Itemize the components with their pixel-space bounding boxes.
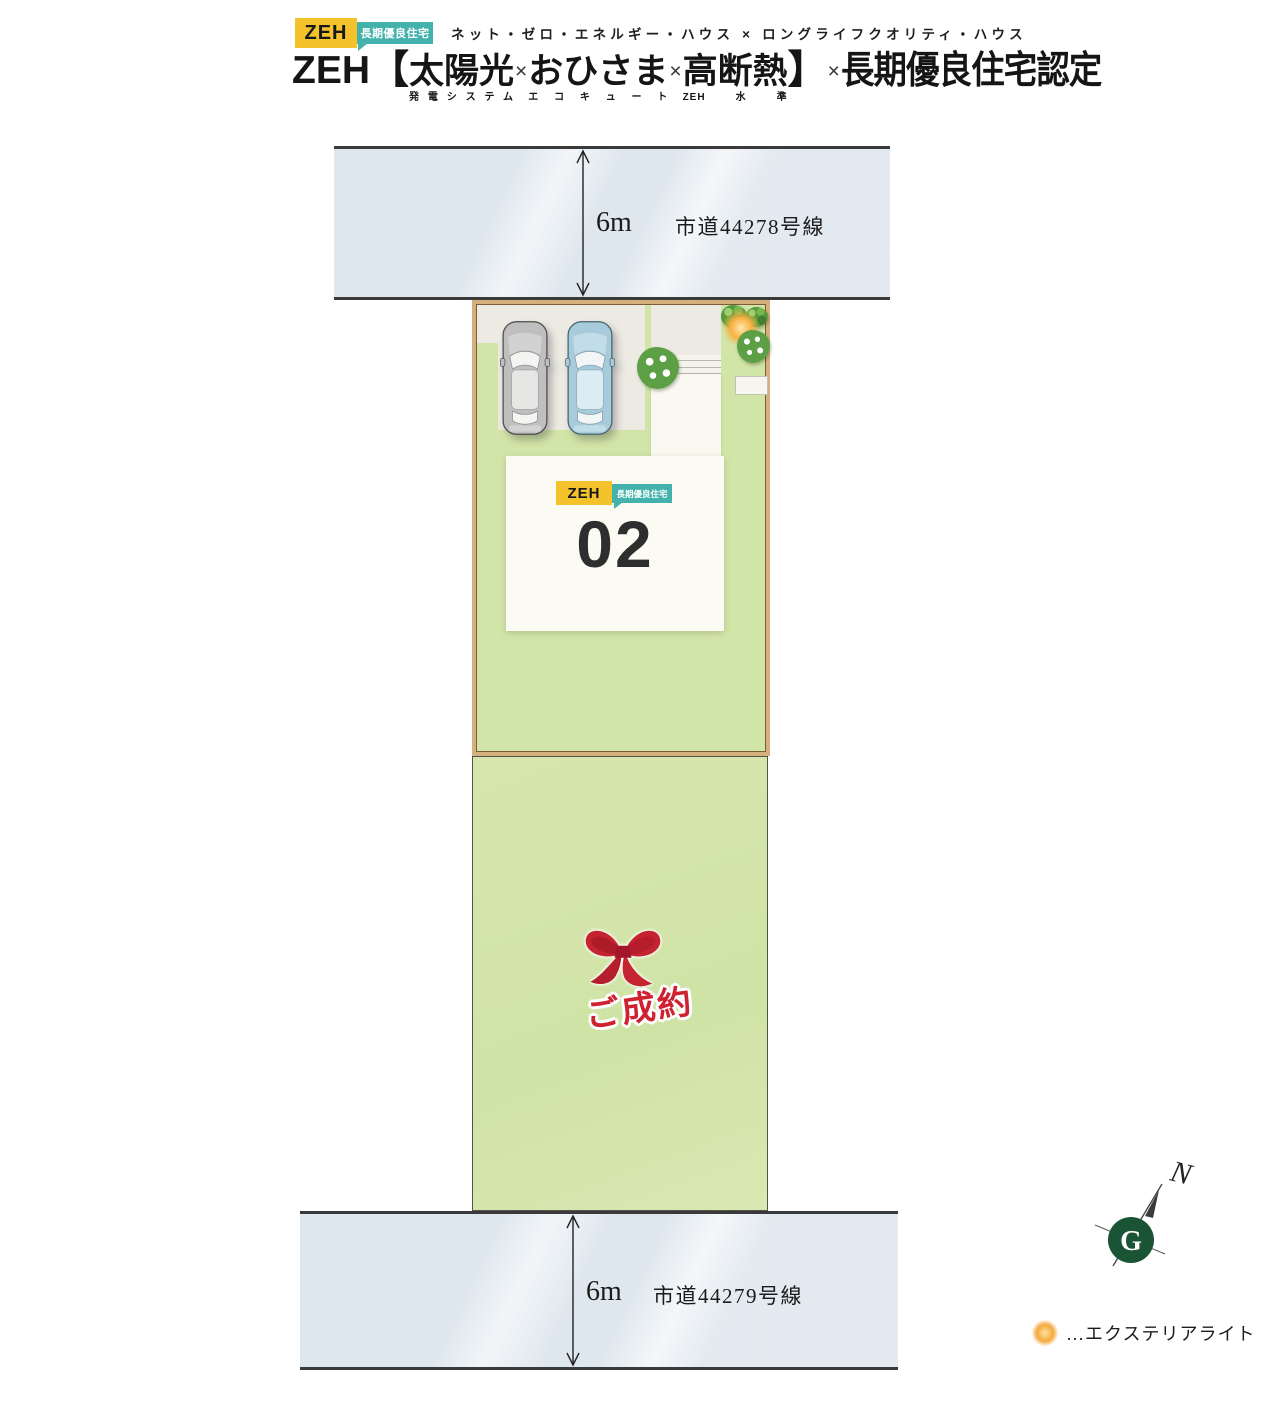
cross-separator-icon: ×: [669, 60, 681, 84]
road-name: 市道44278号線: [675, 211, 825, 241]
zeh-badge-yellow: ZEH: [295, 18, 357, 48]
car-blue: [565, 314, 615, 442]
road-width-label: 6m: [596, 207, 632, 239]
road-bottom: 6m 市道44279号線: [300, 1211, 898, 1370]
road-name: 市道44279号線: [653, 1280, 803, 1310]
house-zeh-badge-teal: 長期優良住宅: [612, 484, 672, 503]
road-width-label: 6m: [586, 1276, 622, 1308]
entrance-steps: [676, 355, 721, 374]
title-main: おひさま: [528, 54, 668, 91]
compass-north-label: N: [1166, 1155, 1196, 1193]
road-width-arrow: [573, 149, 593, 297]
title-ruby: 発電システム: [409, 93, 514, 103]
compass-needle-head: [1145, 1190, 1159, 1218]
zeh-badge: ZEH 長期優良住宅: [295, 18, 433, 48]
title-prefix: ZEH【: [292, 50, 409, 93]
zeh-badge-teal: 長期優良住宅: [357, 22, 433, 44]
title-ruby: エコキュート: [528, 93, 668, 103]
house-zeh-badge-yellow: ZEH: [556, 481, 612, 505]
road-top: 6m 市道44278号線: [334, 146, 890, 300]
house-02: ZEH 長期優良住宅 02: [506, 456, 724, 631]
title-ruby: ZEH水準: [683, 93, 788, 103]
legend-label: …エクステリアライト: [1066, 1320, 1255, 1346]
side-step: [735, 376, 768, 395]
legend-light-icon: [1032, 1320, 1058, 1346]
compass: G N: [1085, 1148, 1225, 1313]
house-zeh-badge-teal-label: 長期優良住宅: [616, 488, 667, 500]
compass-logo-letter: G: [1120, 1226, 1142, 1257]
main-title: ZEH【 太陽光 発電システム × おひさま エコキュート × 高断熱 ZEH水…: [292, 50, 1137, 103]
road-width-arrow: [563, 1214, 583, 1367]
title-main: 太陽光: [409, 54, 514, 91]
house-zeh-badge: ZEH 長期優良住宅: [556, 481, 672, 505]
bush-icon: [737, 330, 770, 363]
lot-02: ZEH 長期優良住宅 02: [472, 300, 770, 756]
title-group-ohisama: おひさま エコキュート: [528, 54, 668, 103]
title-bracket: 】: [788, 50, 827, 93]
cross-separator-icon: ×: [828, 60, 840, 84]
lot-sold: ご成約: [472, 756, 768, 1211]
header: ZEH 長期優良住宅 ネット・ゼロ・エネルギー・ハウス × ロングライフクオリテ…: [295, 18, 1027, 48]
title-group-insulation: 高断熱 ZEH水準: [683, 54, 788, 103]
header-subtitle: ネット・ゼロ・エネルギー・ハウス × ロングライフクオリティ・ハウス: [451, 23, 1027, 43]
lot-number: 02: [506, 511, 724, 577]
title-group-solar: 太陽光 発電システム: [409, 54, 514, 103]
title-suffix: 長期優良住宅認定: [841, 51, 1101, 93]
zeh-badge-teal-label: 長期優良住宅: [361, 25, 430, 41]
car-gray: [500, 314, 550, 442]
page: ZEH 長期優良住宅 ネット・ゼロ・エネルギー・ハウス × ロングライフクオリテ…: [0, 0, 1280, 1405]
title-main: 高断熱: [683, 54, 788, 91]
cross-separator-icon: ×: [515, 60, 527, 84]
legend: …エクステリアライト: [1032, 1320, 1255, 1346]
